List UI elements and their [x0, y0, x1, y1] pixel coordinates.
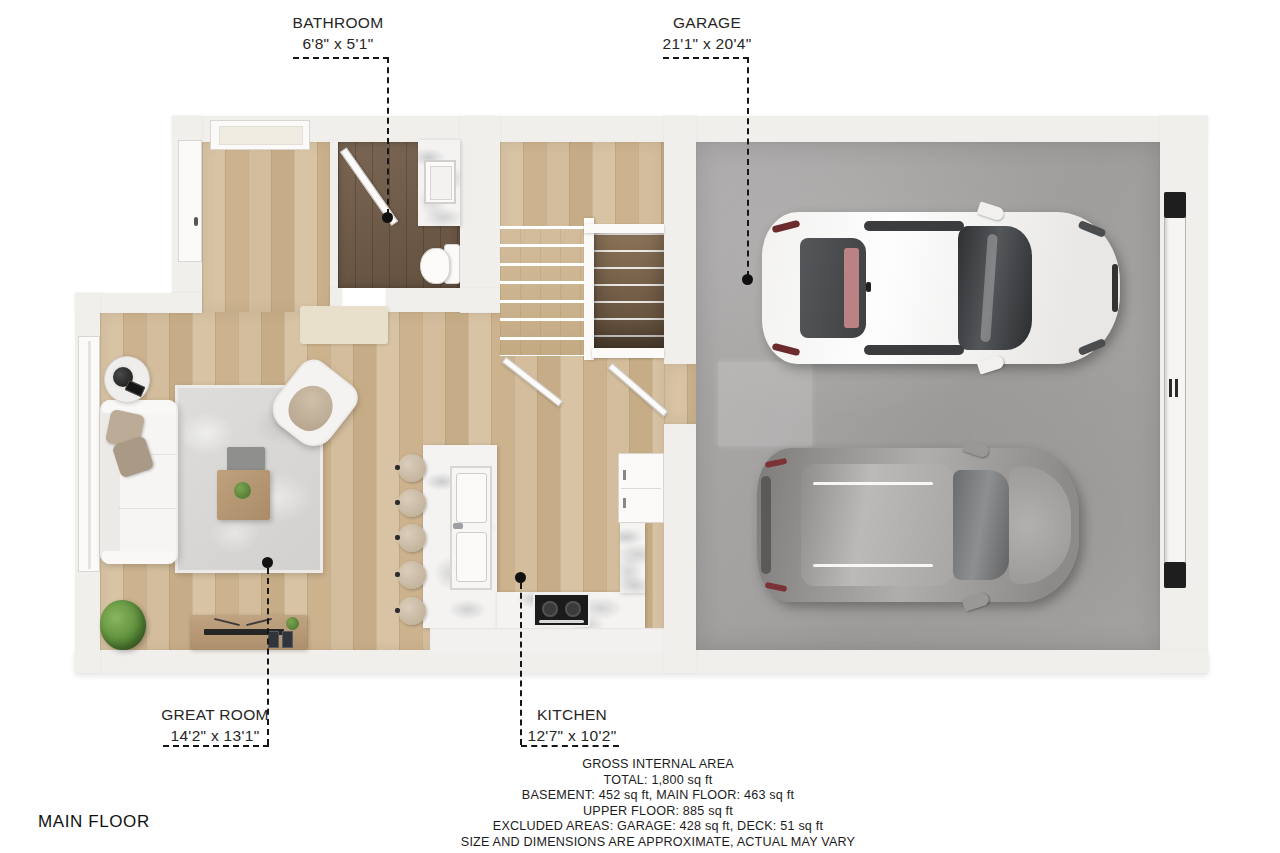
wall-garage-divider-lower: [664, 424, 696, 673]
entry-window-glass: [219, 126, 303, 145]
area-summary-upper: UPPER FLOOR: 885 sq ft: [408, 804, 908, 820]
great-room-window-mullion: [88, 341, 91, 569]
gray-car-roof-rail-bottom: [813, 564, 933, 567]
garage-concrete-pad: [718, 362, 812, 446]
kitchen-label-dimensions: 12'7" x 10'2": [506, 725, 638, 746]
great-room-leader-dot: [262, 557, 273, 568]
stove-burner-right: [565, 601, 581, 617]
stove-burner-left: [542, 601, 558, 617]
kitchen-stool: [398, 524, 426, 552]
white-car-grille: [1112, 264, 1118, 312]
kitchen-label: KITCHEN 12'7" x 10'2": [506, 704, 638, 746]
wall-garage-divider-upper: [664, 116, 696, 364]
kitchen-cabinets-right: [618, 453, 664, 523]
garage-door-track-top: [1164, 192, 1186, 218]
bathroom-sink-basin: [430, 166, 452, 200]
floor-plant: [100, 600, 146, 650]
bathroom-sink: [424, 160, 456, 204]
front-door-handle: [194, 217, 198, 226]
sofa-seam-2: [118, 508, 176, 509]
side-table: [104, 356, 150, 403]
garage-leader-dot: [742, 274, 753, 285]
kitchen-stool: [398, 489, 426, 517]
bathroom-leader-vertical: [387, 57, 389, 215]
stairs-rail-bottom: [592, 348, 664, 358]
stairs-rail-top: [584, 224, 664, 233]
area-summary-excluded: EXCLUDED AREAS: GARAGE: 428 sq ft, DECK:…: [408, 819, 908, 835]
kitchen-stool: [398, 597, 426, 625]
gray-car: [757, 448, 1079, 602]
white-car-side-window-bottom: [864, 345, 964, 355]
white-car-rear-window: [800, 238, 866, 338]
garage-doorway-floor: [664, 364, 696, 424]
area-summary-total: TOTAL: 1,800 sq ft: [408, 773, 908, 789]
kitchen-leader-dot: [515, 572, 526, 583]
coffee-table-tray: [227, 447, 265, 471]
garage-label-name: GARAGE: [637, 12, 777, 33]
white-car-windshield-glare: [980, 234, 998, 342]
stairs-divider-wall: [584, 218, 594, 360]
garage-door-vents: [1169, 379, 1181, 397]
stairs-down-run: [594, 233, 664, 353]
tv-console: [190, 615, 307, 650]
great-room-label-dimensions: 14'2" x 13'1": [148, 725, 282, 746]
bathroom-mat: [300, 306, 388, 344]
entry-hall-floor: [202, 142, 330, 312]
coffee-table-plant: [234, 482, 251, 499]
kitchen-faucet: [453, 523, 463, 529]
great-room-label: GREAT ROOM 14'2" x 13'1": [148, 704, 282, 746]
area-summary-basement-main: BASEMENT: 452 sq ft, MAIN FLOOR: 463 sq …: [408, 788, 908, 804]
kitchen-sink-basin-top: [456, 473, 487, 523]
floor-plan-page: BATHROOM 6'8" x 5'1" GARAGE 21'1" x 20'4…: [0, 0, 1280, 853]
wall-bottom: [75, 650, 1208, 673]
gray-car-roof-rail-top: [813, 482, 933, 485]
bathroom-leader-horizontal: [293, 57, 389, 59]
kitchen-label-name: KITCHEN: [506, 704, 638, 725]
sofa-arm-bottom: [102, 551, 176, 564]
stove: [533, 593, 590, 627]
bathroom-leader-dot: [382, 212, 393, 223]
tv-stand-leg-left: [214, 618, 240, 626]
toilet-bowl: [420, 248, 450, 284]
bathroom-label: BATHROOM 6'8" x 5'1": [268, 12, 408, 54]
garage-door-track-bottom: [1164, 562, 1186, 588]
kitchen-stool: [398, 454, 426, 482]
garage-leader-horizontal: [663, 57, 749, 59]
stairs-up-run: [500, 226, 584, 356]
bathroom-label-name: BATHROOM: [268, 12, 408, 33]
floor-title: MAIN FLOOR: [38, 812, 150, 832]
kitchen-stool: [398, 561, 426, 589]
white-car: [762, 212, 1120, 364]
gray-car-windshield: [953, 470, 1009, 580]
garage-door: [1164, 192, 1186, 588]
area-summary-heading: GROSS INTERNAL AREA: [408, 757, 908, 773]
garage-label-dimensions: 21'1" x 20'4": [637, 33, 777, 54]
kitchen-lower-wall: [430, 628, 664, 652]
console-plant: [286, 617, 299, 630]
area-summary: GROSS INTERNAL AREA TOTAL: 1,800 sq ft B…: [408, 757, 908, 851]
wall-bathroom-left: [330, 140, 338, 312]
cabinet-handle-1: [623, 470, 626, 480]
front-door: [178, 140, 202, 262]
cabinet-seam: [621, 488, 661, 489]
wall-bathroom-bottom: [386, 288, 500, 312]
stove-handle: [539, 620, 584, 623]
area-summary-disclaimer: SIZE AND DIMENSIONS ARE APPROXIMATE, ACT…: [408, 835, 908, 851]
bathroom-label-dimensions: 6'8" x 5'1": [268, 33, 408, 54]
gray-car-rear-strip: [761, 476, 771, 574]
coffee-table: [217, 470, 270, 520]
sofa: [100, 400, 178, 564]
kitchen-counter-right: [620, 523, 645, 593]
garage-leader-vertical: [747, 57, 749, 277]
table-book: [125, 380, 146, 397]
white-car-antenna: [866, 282, 871, 292]
great-room-label-name: GREAT ROOM: [148, 704, 282, 725]
console-speaker-1: [268, 631, 279, 648]
white-car-windshield: [958, 226, 1032, 350]
wall-bathroom-right: [460, 116, 500, 313]
garage-label: GARAGE 21'1" x 20'4": [637, 12, 777, 54]
kitchen-sink-basin-bottom: [456, 532, 487, 582]
cabinet-handle-2: [623, 498, 626, 508]
console-speaker-2: [282, 631, 293, 648]
kitchen-sink: [450, 466, 492, 590]
white-car-rear-seats: [844, 248, 859, 328]
white-car-side-window-top: [864, 221, 964, 231]
entry-window: [210, 120, 310, 150]
great-room-window: [78, 336, 100, 572]
